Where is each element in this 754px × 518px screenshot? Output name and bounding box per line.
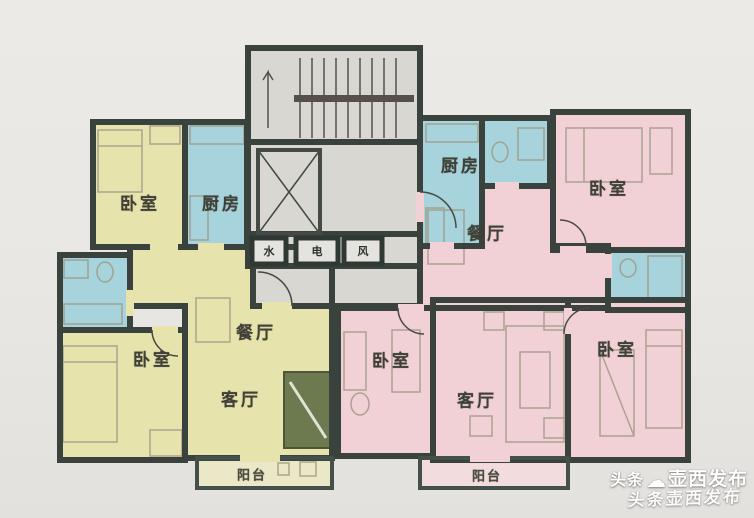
right-living-room [433, 300, 568, 460]
entry-vestibule-room [253, 266, 420, 306]
right-bedroom-middle-label: 卧室 [372, 347, 412, 372]
left-living-green-cabinet [284, 372, 332, 448]
left-bedroom-top-room [93, 122, 185, 247]
floorplan-drawing [0, 0, 754, 518]
right-bedroom-bottom-label: 卧室 [597, 336, 637, 361]
left-kitchen-room [185, 122, 247, 247]
right-kitchen-label: 厨房 [441, 152, 481, 177]
floorplan-image: 卧室 厨房 卧室 餐厅 客厅 阳台 厨房 餐厅 卧室 卧室 客厅 卧室 阳台 水… [0, 0, 754, 518]
left-bathroom-room [60, 255, 130, 330]
right-dining-label: 餐厅 [467, 220, 507, 245]
left-kitchen-label: 厨房 [202, 190, 242, 215]
right-living-label: 客厅 [457, 387, 497, 412]
left-bedroom-main-label: 卧室 [133, 346, 173, 371]
left-bedroom-top-label: 卧室 [120, 190, 160, 215]
left-dining-label: 餐厅 [236, 319, 276, 344]
left-living-label: 客厅 [221, 386, 261, 411]
water-shaft-label: 水 [264, 243, 275, 259]
vent-shaft-label: 风 [358, 243, 369, 259]
right-bedroom-top-label: 卧室 [589, 175, 629, 200]
electric-shaft-label: 电 [312, 243, 323, 259]
left-balcony-label: 阳台 [237, 465, 267, 484]
right-balcony-label: 阳台 [472, 466, 502, 485]
